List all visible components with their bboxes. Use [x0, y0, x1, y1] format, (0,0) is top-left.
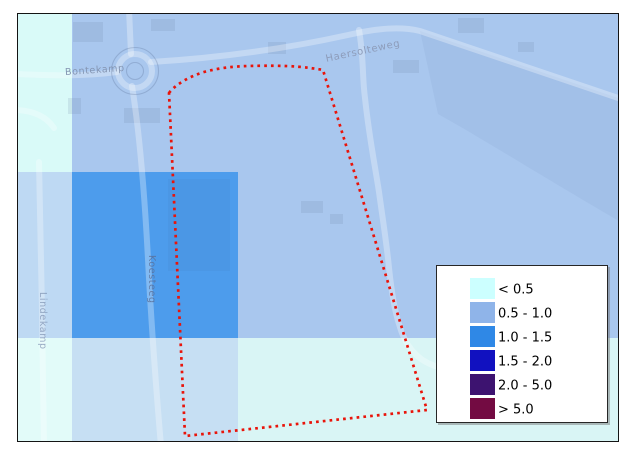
- legend-label: < 0.5: [498, 282, 534, 297]
- legend-row: 1.5 - 2.0: [470, 348, 607, 372]
- legend-row: 0.5 - 1.0: [470, 300, 607, 324]
- legend-row: < 0.5: [470, 276, 607, 300]
- legend-label: > 5.0: [498, 402, 534, 417]
- legend-swatch-0.5-1.0: [470, 302, 495, 323]
- study-area-outline: [169, 66, 427, 436]
- flood-depth-map-figure: Bontekamp Haersolteweg Koesteeg Lindekam…: [0, 0, 634, 457]
- legend-label: 0.5 - 1.0: [498, 306, 552, 321]
- legend-swatch-lt-0.5: [470, 278, 495, 299]
- legend-label: 1.0 - 1.5: [498, 330, 552, 345]
- legend-swatch-gt-5.0: [470, 398, 495, 419]
- depth-legend: < 0.5 0.5 - 1.0 1.0 - 1.5 1.5 - 2.0 2.0 …: [436, 265, 608, 423]
- legend-swatch-1.5-2.0: [470, 350, 495, 371]
- legend-swatch-1.0-1.5: [470, 326, 495, 347]
- legend-label: 2.0 - 5.0: [498, 378, 552, 393]
- map-canvas: Bontekamp Haersolteweg Koesteeg Lindekam…: [17, 13, 619, 442]
- legend-label: 1.5 - 2.0: [498, 354, 552, 369]
- legend-row: 1.0 - 1.5: [470, 324, 607, 348]
- legend-row: > 5.0: [470, 396, 607, 420]
- legend-swatch-2.0-5.0: [470, 374, 495, 395]
- legend-row: 2.0 - 5.0: [470, 372, 607, 396]
